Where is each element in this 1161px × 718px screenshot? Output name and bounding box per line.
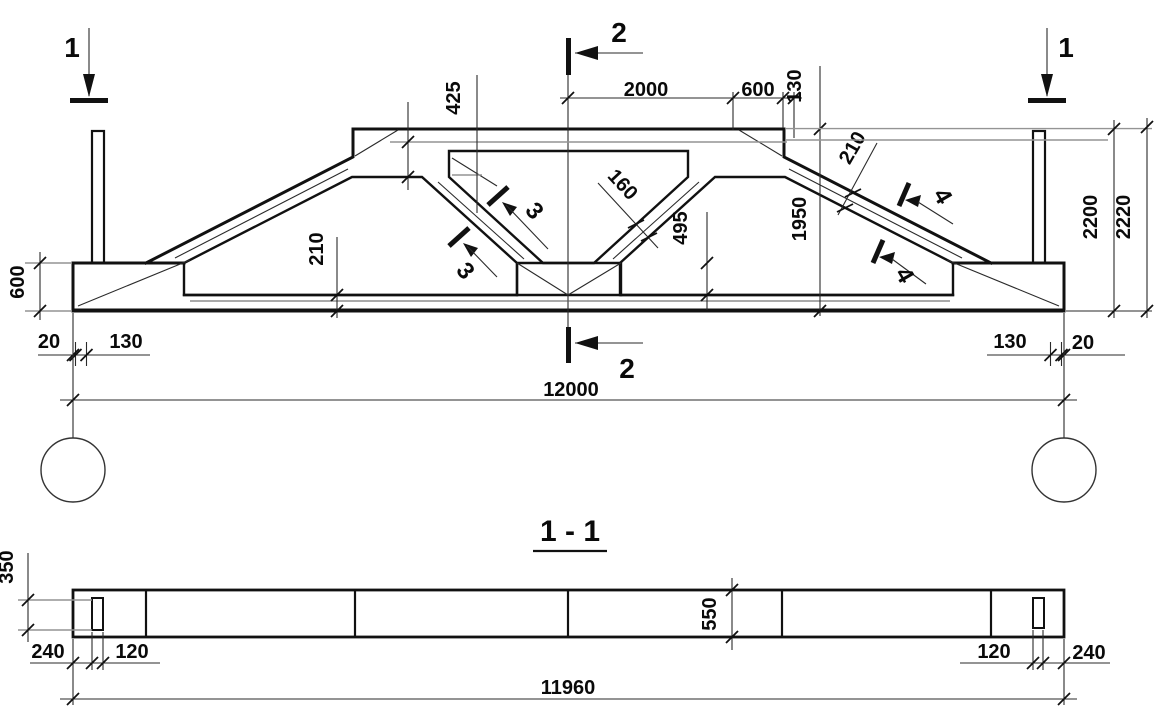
section-mark-2-bottom: 2 <box>566 327 643 384</box>
section-label-4: 4 <box>889 263 919 289</box>
section-label-2: 2 <box>619 353 635 384</box>
left-post <box>92 131 104 263</box>
left-post-hole <box>92 598 103 630</box>
dim-495-label: 495 <box>670 211 692 244</box>
dim-2200-label: 2200 <box>1080 195 1102 240</box>
right-post <box>1033 131 1045 263</box>
dim-1950-label: 1950 <box>789 197 811 242</box>
dim-chain-section-right: 120 240 <box>960 630 1110 705</box>
dim-2220-label: 2220 <box>1113 195 1135 240</box>
section-arrow-icon <box>879 252 895 264</box>
dim-130-left: 130 <box>109 331 142 353</box>
dim-240-left: 240 <box>31 641 64 663</box>
section-mark-1-left: 1 <box>64 28 108 103</box>
section-arrow-down-icon <box>1041 74 1053 97</box>
section-mark-3-lower: 3 <box>449 228 497 285</box>
section-label-2: 2 <box>611 17 627 48</box>
thin-construction-lines <box>78 75 1059 363</box>
dim-20-left: 20 <box>38 331 60 353</box>
section-arrow-icon <box>905 195 921 207</box>
section-label-1: 1 <box>1058 32 1074 63</box>
dim-210-chord-label: 210 <box>306 232 328 265</box>
elevation-view: 2000 600 130 425 160 495 <box>7 17 1153 502</box>
section-arrow-down-icon <box>83 74 95 97</box>
axis-circle-left <box>41 438 105 502</box>
beam-drawing: 2000 600 130 425 160 495 <box>0 0 1161 718</box>
section-1-1-view: 1 - 1 350 550 <box>0 515 1110 705</box>
dim-210-slope-label: 210 <box>835 128 871 168</box>
dim-350-label: 350 <box>0 550 18 583</box>
dim-550-label: 550 <box>699 597 721 630</box>
dim-120-left: 120 <box>115 641 148 663</box>
dim-240-right: 240 <box>1072 642 1105 664</box>
dim-130-top: 130 <box>784 69 806 102</box>
section-title: 1 - 1 <box>540 515 600 548</box>
dim-120-right: 120 <box>977 641 1010 663</box>
dim-350: 350 <box>0 550 92 642</box>
dim-210-chord: 210 <box>306 232 343 318</box>
dim-130-right: 130 <box>993 331 1026 353</box>
section-label-1: 1 <box>64 32 80 63</box>
dim-2000: 2000 <box>624 79 669 101</box>
section-arrow-left-icon <box>575 46 598 60</box>
dim-600-top: 600 <box>741 79 774 101</box>
section-label-3: 3 <box>520 197 549 225</box>
right-post-hole <box>1033 598 1044 628</box>
section-arrow-left-icon <box>575 336 598 350</box>
dim-160-label: 160 <box>603 165 642 204</box>
dim-span-11960: 11960 <box>60 677 1077 705</box>
section-label-3: 3 <box>451 257 480 285</box>
section-mark-2-top: 2 <box>566 17 643 75</box>
dim-20-right: 20 <box>1072 332 1094 354</box>
drawing-sheet: 2000 600 130 425 160 495 <box>0 0 1161 718</box>
dim-600-end-label: 600 <box>7 265 29 298</box>
center-block <box>517 263 621 295</box>
axis-circle-right <box>1032 438 1096 502</box>
dim-600-end: 600 <box>7 252 72 320</box>
dim-chain-bottom-left: 20 130 <box>38 331 150 366</box>
dim-chain-bottom-right: 130 20 <box>987 331 1125 366</box>
section-division-lines <box>146 590 991 637</box>
dim-chain-section-left: 240 120 <box>30 632 160 705</box>
section-mark-4-upper: 4 <box>899 183 958 224</box>
section-mark-4-lower: 4 <box>873 240 926 288</box>
section-mark-1-right: 1 <box>1028 28 1074 103</box>
dim-11960-label: 11960 <box>541 677 596 699</box>
section-label-4: 4 <box>927 184 957 210</box>
dim-425-label: 425 <box>443 81 465 114</box>
dim-12000-label: 12000 <box>543 379 599 401</box>
